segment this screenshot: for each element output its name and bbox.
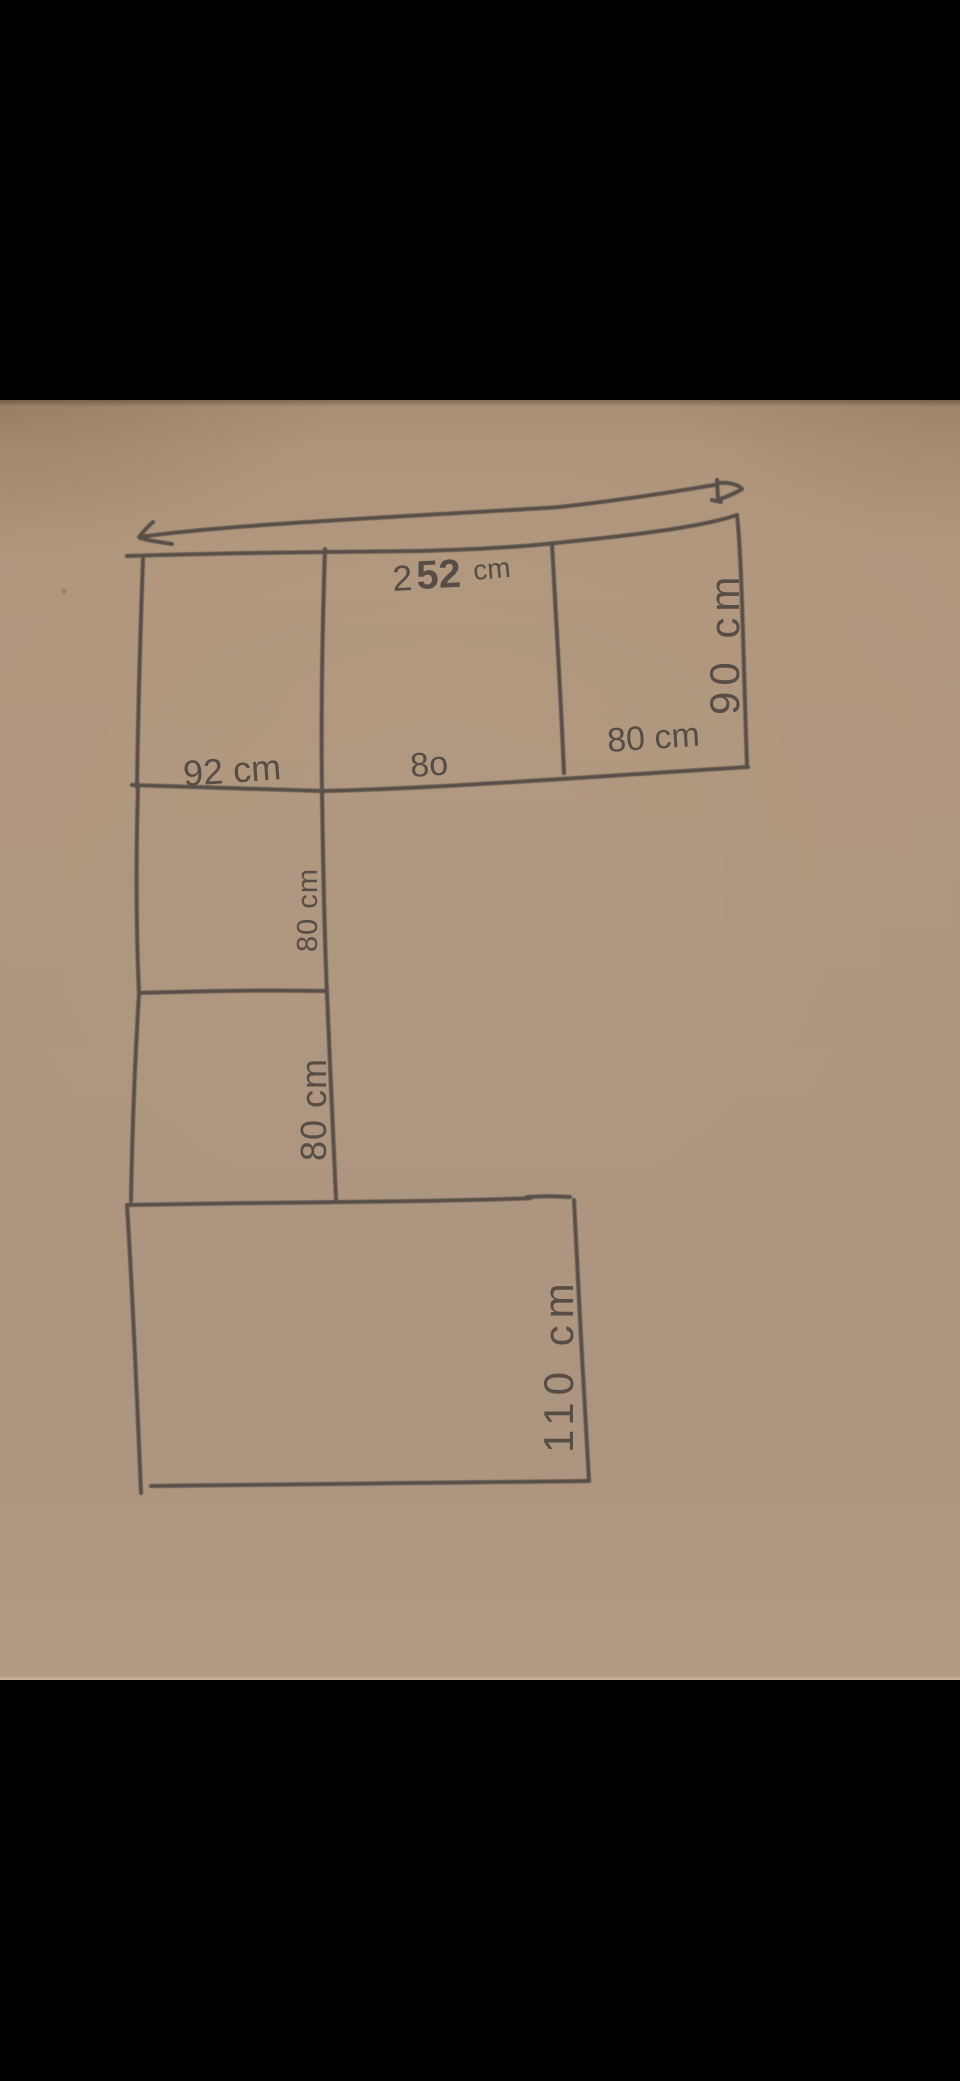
svg-text:90 cm: 90 cm (701, 571, 748, 715)
svg-text:80 cm: 80 cm (606, 716, 701, 760)
svg-text:2: 2 (391, 557, 413, 599)
svg-text:80 cm: 80 cm (292, 868, 324, 952)
svg-text:92 cm: 92 cm (182, 746, 283, 794)
svg-text:8o: 8o (409, 744, 449, 785)
svg-text:52: 52 (415, 552, 462, 598)
svg-text:110 cm: 110 cm (535, 1276, 582, 1453)
svg-text:80 cm: 80 cm (293, 1058, 334, 1161)
svg-text:cm: cm (472, 552, 512, 586)
